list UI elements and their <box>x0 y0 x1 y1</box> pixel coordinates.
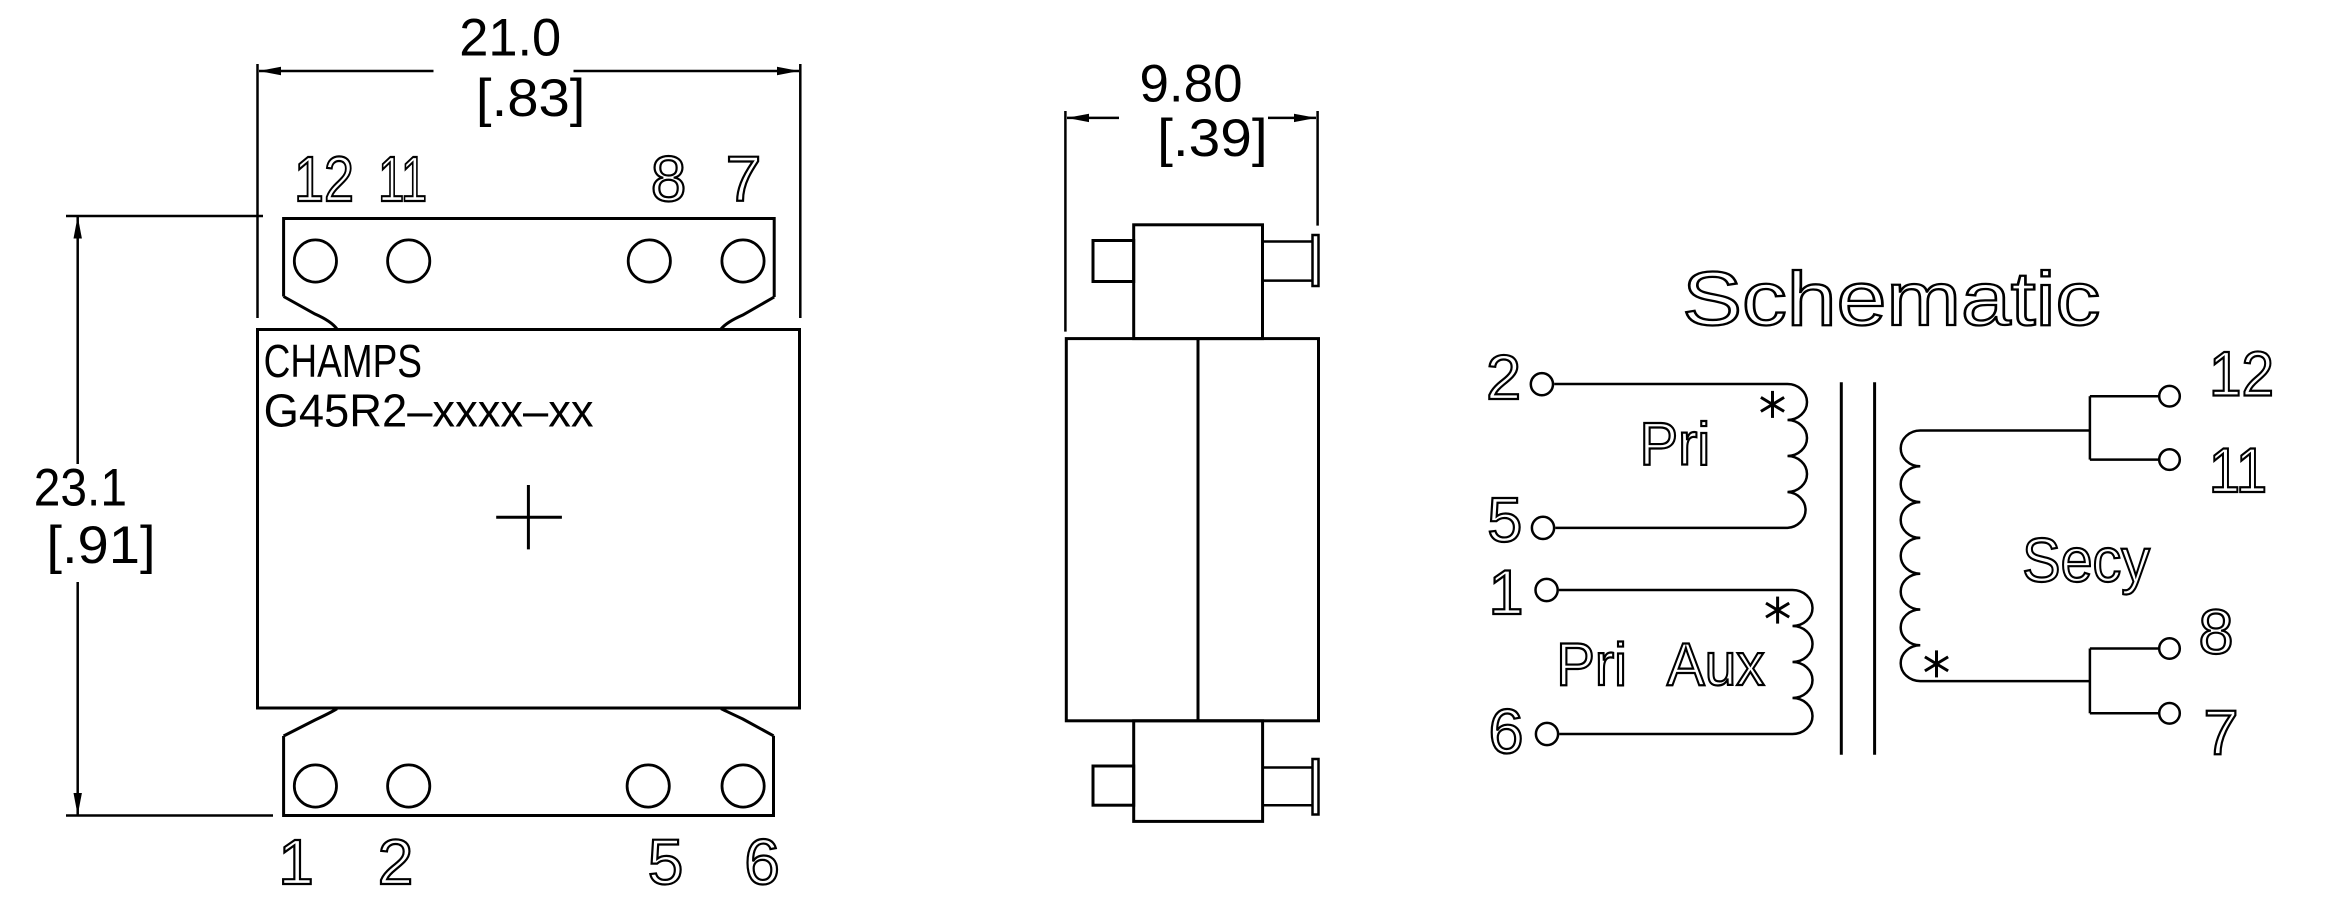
svg-text:1: 1 <box>278 826 314 898</box>
svg-text:Aux: Aux <box>1667 631 1765 698</box>
svg-text:21.0: 21.0 <box>459 9 561 68</box>
svg-text:6: 6 <box>1488 697 1523 767</box>
svg-text:[.39]: [.39] <box>1157 109 1268 168</box>
svg-text:12: 12 <box>294 143 354 215</box>
svg-text:6: 6 <box>744 826 780 898</box>
svg-text:11: 11 <box>378 143 427 215</box>
svg-text:Pri: Pri <box>1640 411 1711 478</box>
svg-text:Secy: Secy <box>2022 526 2150 595</box>
svg-text:8: 8 <box>651 143 687 215</box>
svg-text:Pri: Pri <box>1556 631 1627 698</box>
svg-text:12: 12 <box>2209 339 2274 409</box>
svg-text:9.80: 9.80 <box>1140 55 1243 114</box>
svg-text:Schematic: Schematic <box>1682 257 2100 342</box>
svg-text:[.83]: [.83] <box>476 69 586 128</box>
svg-text:7: 7 <box>726 143 762 215</box>
svg-text:8: 8 <box>2198 597 2233 667</box>
svg-text:23.1: 23.1 <box>34 459 127 518</box>
svg-text:2: 2 <box>1486 343 1521 413</box>
svg-text:5: 5 <box>648 826 684 898</box>
svg-text:CHAMPS: CHAMPS <box>264 335 422 387</box>
svg-text:1: 1 <box>1488 558 1523 628</box>
svg-text:11: 11 <box>2209 436 2267 506</box>
svg-text:G45R2–xxxx–xx: G45R2–xxxx–xx <box>264 384 594 436</box>
svg-text:[.91]: [.91] <box>46 516 155 575</box>
svg-text:5: 5 <box>1487 485 1522 555</box>
svg-text:7: 7 <box>2203 699 2238 769</box>
svg-text:2: 2 <box>378 826 414 898</box>
